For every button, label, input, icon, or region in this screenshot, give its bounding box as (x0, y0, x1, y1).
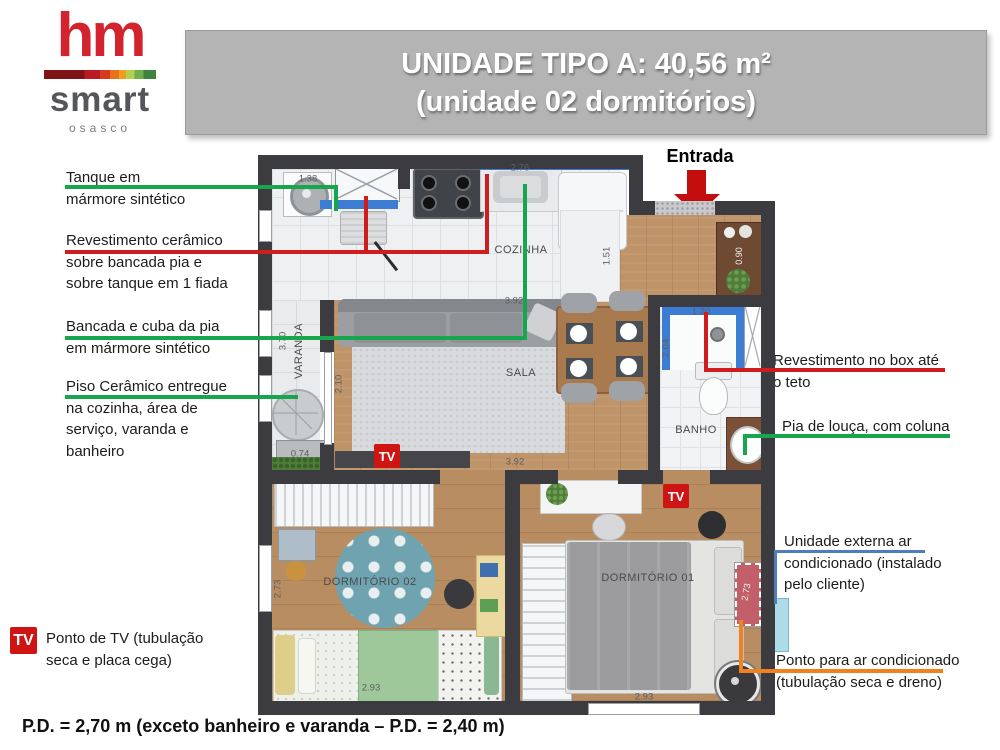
washing-machine-door (302, 189, 311, 198)
dorm02-pillow-green (484, 635, 499, 695)
stove-burner (455, 175, 471, 191)
connector-pia (743, 434, 950, 438)
connector-bancada-v (523, 184, 527, 340)
desk-book-blue (480, 563, 498, 577)
dorm02-desk (278, 529, 316, 561)
plate (570, 360, 587, 377)
logo-smart-text: smart (40, 83, 160, 117)
dining-chair (609, 291, 645, 311)
floor-drain-center (731, 677, 739, 685)
backsplash-tile-small (320, 200, 332, 209)
annotation-piso-ceramico: Piso Cerâmico entregue na cozinha, área … (66, 376, 276, 462)
logo-city-text: osasco (40, 121, 160, 135)
connector-bancada (65, 336, 527, 340)
entry-doormat (655, 201, 715, 215)
connector-ponto-ac-v (739, 620, 743, 673)
connector-box-v (704, 312, 708, 372)
wall-bedrooms-4 (710, 470, 775, 484)
tv-point-sala: TV (374, 444, 400, 468)
dorm02-bed-green-blanket (358, 630, 440, 702)
wall-entry-right (715, 201, 762, 215)
dorm01-plant (546, 483, 568, 505)
toilet-bowl (699, 377, 728, 415)
wall-bath-top (648, 295, 761, 307)
wall-between-dorms (505, 470, 520, 701)
dorm01-side-table (698, 511, 726, 539)
dining-chair (609, 381, 645, 401)
stove-burner (455, 195, 471, 211)
ceiling-height-note: P.D. = 2,70 m (exceto banheiro e varanda… (22, 716, 505, 737)
kitchen-right-counter (560, 210, 620, 302)
wall-top (258, 155, 643, 169)
tv-legend-text: Ponto de TV (tubulação seca e placa cega… (46, 628, 266, 671)
wall-service-stub (398, 155, 410, 189)
floor-plan: TV TV COZINHASALABANHOVARANDADORMITÓRIO … (258, 155, 775, 715)
plate (570, 325, 587, 342)
logo-color-stripe (44, 70, 156, 79)
connector-revestimento-v2 (485, 174, 489, 254)
connector-tanque (65, 185, 338, 189)
tv-point-dorm01: TV (663, 484, 689, 508)
wall-bath-left (648, 307, 660, 484)
annotation-unidade-externa: Unidade externa ar condicionado (instala… (784, 531, 999, 596)
connector-tanque-drop (334, 185, 338, 211)
window-varanda-1 (259, 310, 272, 357)
wall-entry-notch (629, 155, 643, 215)
console-decor (739, 225, 752, 238)
dining-chair (561, 293, 597, 313)
dorm02-chair (286, 561, 306, 581)
page: { "logo": {"hm": "hm", "smart": "smart",… (0, 0, 1000, 750)
wall-entry-left (643, 201, 655, 215)
connector-ac-unit (774, 550, 925, 553)
console-plant (726, 269, 750, 293)
window-service (259, 210, 272, 242)
dorm02-pillow-yellow (275, 635, 295, 695)
connector-ponto-ac (739, 669, 943, 673)
dining-chair (561, 383, 597, 403)
hm-smart-logo: hm smart osasco (40, 4, 160, 135)
desk-book-green (480, 599, 498, 612)
connector-revestimento-v1 (364, 196, 368, 254)
sala-rug (352, 347, 565, 453)
stove-burner (421, 175, 437, 191)
dorm02-pillow-white (298, 638, 316, 694)
console-decor (724, 227, 735, 238)
dorm02-office-chair (444, 579, 474, 609)
connector-revestimento (65, 250, 489, 254)
wall-varanda-bottom (320, 443, 334, 470)
shower-tile-left (662, 315, 670, 370)
plate (620, 323, 637, 340)
varanda-sliding-door (324, 352, 332, 445)
shaft-x-mark (744, 305, 761, 367)
stove-burner (421, 195, 437, 211)
connector-ac-unit-v (774, 550, 777, 604)
logo-hm-text: hm (40, 4, 160, 68)
connector-pia-v (743, 437, 747, 455)
wall-bedrooms-1 (272, 470, 440, 484)
wall-bedrooms-3 (618, 470, 663, 484)
dorm02-wardrobe (274, 483, 434, 527)
dorm01-blanket (567, 542, 691, 690)
unit-title: UNIDADE TIPO A: 40,56 m² (401, 45, 771, 83)
ac-point-marker (735, 563, 761, 626)
wall-right (761, 201, 775, 715)
tv-legend-icon: TV (10, 627, 37, 654)
annotation-revestimento-ceramico: Revestimento cerâmico sobre bancada pia … (66, 230, 276, 295)
connector-piso (65, 395, 298, 399)
shower-head (710, 327, 725, 342)
dorm01-stool (592, 513, 626, 541)
dorm02-rug (335, 528, 435, 628)
title-banner: UNIDADE TIPO A: 40,56 m² (unidade 02 dor… (185, 30, 987, 135)
plate (620, 358, 637, 375)
bath-sink (730, 426, 765, 464)
wall-varanda-top (320, 300, 334, 352)
shower-tile-right (736, 315, 744, 370)
varanda-plants (272, 457, 320, 470)
window-dorm02 (259, 545, 272, 612)
connector-box (704, 368, 945, 372)
window-dorm01 (588, 703, 700, 715)
kitchen-sink-basin (500, 176, 541, 198)
tv-console (335, 451, 470, 468)
unit-subtitle: (unidade 02 dormitórios) (416, 83, 756, 121)
